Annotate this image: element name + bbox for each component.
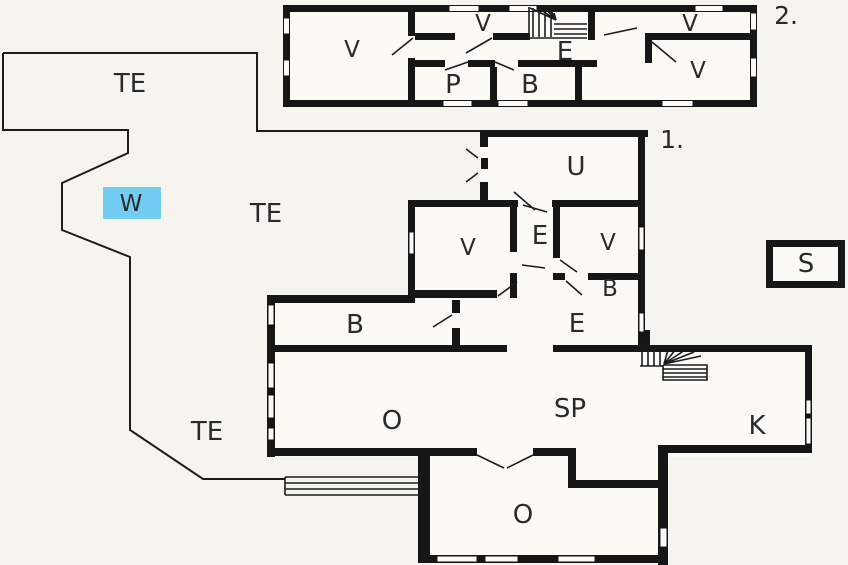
room-label-v: V: [682, 11, 698, 37]
room-label-v: V: [344, 37, 360, 63]
room-label-v: V: [475, 11, 491, 37]
room-label-sp: SP: [554, 394, 586, 424]
room-label-b: B: [346, 310, 364, 340]
room-label-e: E: [557, 37, 573, 67]
room-label-o: O: [382, 406, 402, 436]
room-label-te: TE: [190, 417, 223, 447]
room-label-te: TE: [249, 199, 282, 229]
room-label-w: W: [120, 191, 143, 217]
floor-1-plan: TE W TE U V E V B B E O SP K TE O 1.: [3, 53, 812, 565]
room-label-v: V: [690, 58, 706, 84]
room-label-o: O: [513, 500, 533, 530]
room-label-v: V: [460, 235, 476, 261]
floor-plan-canvas: V V E P B V V 2.: [0, 0, 848, 565]
room-label-e: E: [532, 221, 548, 251]
outbuilding-s: S: [766, 240, 845, 288]
floor-2-plan: V V E P B V V 2.: [283, 1, 798, 107]
room-label-k: K: [748, 411, 766, 441]
room-label-e: E: [569, 309, 585, 339]
room-label-b: B: [521, 70, 539, 100]
entrance-steps: [285, 477, 420, 495]
room-label-te: TE: [113, 69, 146, 99]
floorplan-image: V V E P B V V 2.: [0, 0, 848, 565]
room-label-s: S: [798, 249, 815, 279]
room-label-v: V: [600, 230, 616, 256]
room-label-b: B: [602, 276, 618, 302]
floor-1-number: 1.: [660, 125, 684, 154]
room-label-p: P: [445, 70, 461, 100]
room-label-u: U: [566, 152, 585, 182]
floor-2-number: 2.: [774, 1, 798, 30]
